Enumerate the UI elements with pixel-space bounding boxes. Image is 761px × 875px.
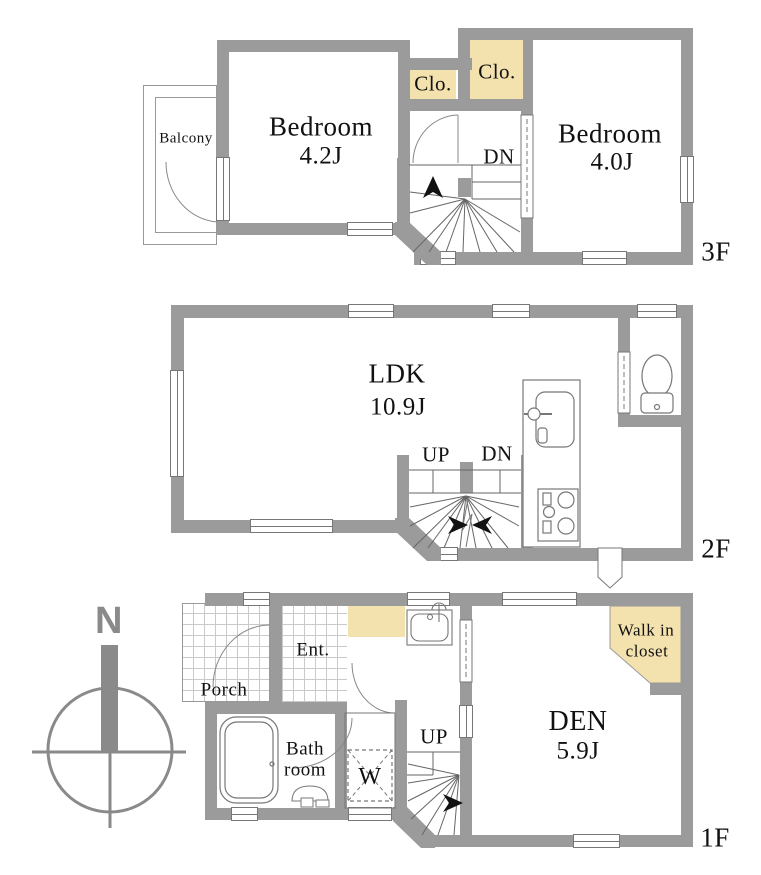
walkin-closet-label-line2: closet	[626, 643, 669, 660]
kitchen-counter	[523, 380, 580, 547]
walkin-closet-label-line1: Walk in	[618, 622, 674, 639]
wall-angle-3f	[395, 222, 441, 265]
ldk-name: LDK	[369, 361, 426, 388]
door-arc-1f-hall	[352, 663, 395, 713]
den-size: 5.9J	[557, 739, 600, 764]
bedroom2-size: 4.0J	[591, 150, 634, 175]
sliding-door-den	[460, 620, 472, 682]
compass-north-label: N	[95, 602, 123, 640]
floor-plan: Balcony Bedroom 4.2J Clo. Clo. DN Bedroo…	[0, 0, 761, 875]
closet2-label: Clo.	[478, 62, 516, 83]
entrance-label: Ent.	[296, 641, 329, 660]
stairs-up-1f-label: UP	[420, 727, 448, 748]
compass	[32, 645, 186, 828]
toilet-fixture	[641, 355, 673, 413]
bathtub	[220, 717, 278, 803]
porch-label: Porch	[201, 681, 248, 700]
stairs-3f	[409, 165, 521, 252]
washing-machine	[345, 713, 395, 808]
floor-label-1f: 1F	[700, 825, 730, 852]
closet1-label: Clo.	[414, 74, 452, 95]
ldk-size: 10.9J	[370, 395, 426, 420]
stairs-up-2f-label: UP	[422, 445, 450, 466]
shower-fixture	[292, 786, 329, 807]
door-arc-balcony	[166, 162, 217, 222]
bathroom-label-line1: Bath	[286, 740, 324, 759]
compass-north-needle	[101, 645, 118, 752]
door-leaf-2f	[598, 548, 622, 588]
washer-label: W	[358, 765, 381, 789]
sliding-door-toilet	[618, 352, 630, 413]
door-arc-porch	[213, 625, 270, 687]
stairs-dn-2f-label: DN	[481, 444, 512, 465]
washbasin	[407, 603, 452, 645]
bathroom-label-line2: room	[284, 761, 326, 780]
sliding-door-3f-bedroom2	[521, 115, 533, 218]
den-name: DEN	[548, 708, 607, 736]
balcony-label: Balcony	[159, 132, 213, 147]
bedroom1-size: 4.2J	[300, 144, 343, 169]
floor-label-3f: 3F	[701, 239, 731, 266]
stair-arrow-up-1f	[443, 794, 463, 812]
door-arc-3f-hall	[413, 115, 458, 163]
stairs-dn-3f-label: DN	[483, 147, 514, 168]
bedroom1-name: Bedroom	[269, 114, 373, 141]
floor-label-2f: 2F	[701, 536, 731, 563]
wall-angle-1f	[393, 807, 435, 848]
bedroom2-name: Bedroom	[558, 121, 662, 148]
stair-arrow-right-2f	[448, 516, 468, 534]
